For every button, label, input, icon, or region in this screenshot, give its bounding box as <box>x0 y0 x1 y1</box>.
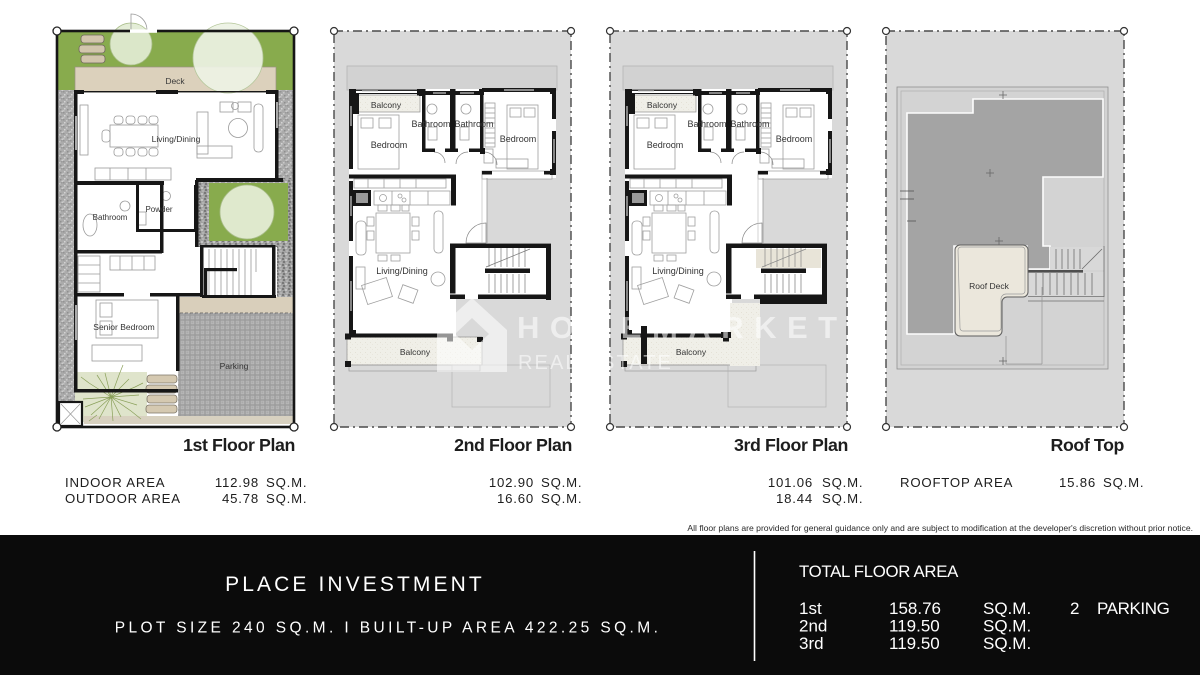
svg-text:SQ.M.: SQ.M. <box>983 634 1031 653</box>
svg-text:Roof Deck: Roof Deck <box>969 281 1009 291</box>
svg-text:All floor plans are provided f: All floor plans are provided for general… <box>687 523 1193 533</box>
svg-text:119.50: 119.50 <box>889 634 940 653</box>
svg-text:PLACE INVESTMENT: PLACE INVESTMENT <box>225 573 485 596</box>
svg-text:158.76: 158.76 <box>889 599 941 618</box>
svg-text:ROOFTOP AREA: ROOFTOP AREA <box>900 475 1013 490</box>
svg-text:REAL ESTATE: REAL ESTATE <box>518 352 673 374</box>
svg-text:TOTAL FLOOR AREA: TOTAL FLOOR AREA <box>799 562 959 581</box>
svg-text:Living/Dining: Living/Dining <box>152 134 201 144</box>
svg-text:Bathroom: Bathroom <box>93 213 128 222</box>
svg-text:SQ.M.: SQ.M. <box>822 475 863 490</box>
svg-text:1st: 1st <box>799 599 822 618</box>
svg-text:101.06: 101.06 <box>768 475 813 490</box>
svg-text:HOMEMARKET: HOMEMARKET <box>517 310 848 345</box>
svg-text:Parking: Parking <box>220 361 249 371</box>
svg-text:OUTDOOR AREA: OUTDOOR AREA <box>65 491 181 506</box>
svg-text:102.90: 102.90 <box>489 475 534 490</box>
svg-text:Deck: Deck <box>165 76 185 86</box>
svg-text:Roof Top: Roof Top <box>1051 435 1125 455</box>
svg-text:119.50: 119.50 <box>889 617 940 636</box>
svg-text:1st Floor Plan: 1st Floor Plan <box>183 435 295 455</box>
svg-text:Powder: Powder <box>145 205 172 214</box>
svg-text:45.78: 45.78 <box>222 491 259 506</box>
svg-text:SQ.M.: SQ.M. <box>822 491 863 506</box>
svg-text:16.60: 16.60 <box>497 491 534 506</box>
svg-text:Senior Bedroom: Senior Bedroom <box>93 322 154 332</box>
svg-text:SQ.M.: SQ.M. <box>541 475 582 490</box>
svg-text:INDOOR AREA: INDOOR AREA <box>65 475 165 490</box>
svg-text:SQ.M.: SQ.M. <box>541 491 582 506</box>
svg-text:2nd Floor Plan: 2nd Floor Plan <box>454 435 572 455</box>
svg-text:SQ.M.: SQ.M. <box>1103 475 1144 490</box>
svg-text:PARKING: PARKING <box>1097 599 1169 618</box>
svg-text:15.86: 15.86 <box>1059 475 1096 490</box>
svg-text:SQ.M.: SQ.M. <box>983 599 1031 618</box>
svg-text:3rd Floor Plan: 3rd Floor Plan <box>734 435 848 455</box>
svg-text:18.44: 18.44 <box>776 491 813 506</box>
svg-text:112.98: 112.98 <box>215 475 259 490</box>
svg-text:SQ.M.: SQ.M. <box>266 491 307 506</box>
svg-text:2nd: 2nd <box>799 617 827 636</box>
svg-text:2: 2 <box>1070 599 1079 618</box>
svg-text:SQ.M.: SQ.M. <box>983 617 1031 636</box>
svg-text:3rd: 3rd <box>799 634 824 653</box>
svg-text:SQ.M.: SQ.M. <box>266 475 307 490</box>
svg-text:PLOT SIZE 240 SQ.M. I BUILT: PLOT SIZE 240 SQ.M. I BUILT-UP AREA 422.… <box>115 620 662 637</box>
